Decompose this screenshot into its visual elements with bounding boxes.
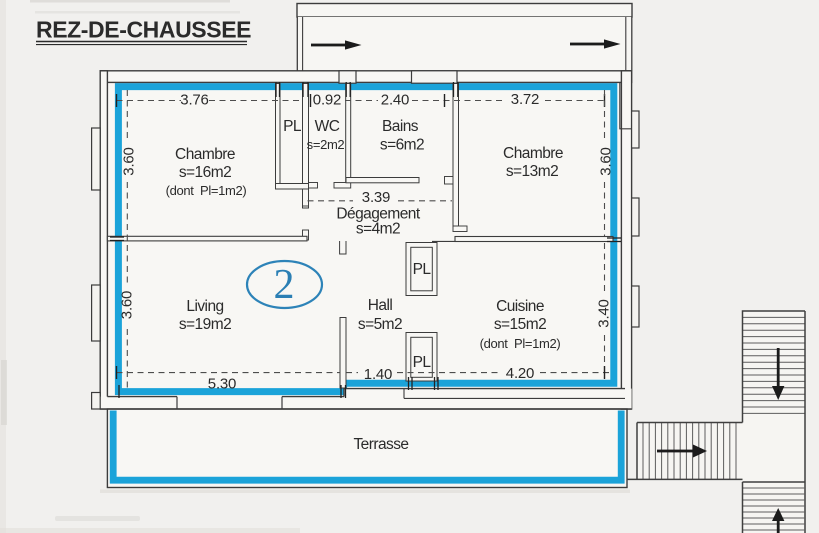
svg-text:s=19m2: s=19m2 bbox=[179, 316, 231, 333]
svg-text:5.30: 5.30 bbox=[208, 376, 236, 393]
svg-text:2: 2 bbox=[274, 262, 295, 308]
svg-text:PL: PL bbox=[283, 118, 302, 135]
svg-text:2.40: 2.40 bbox=[381, 92, 409, 109]
svg-text:s=13m2: s=13m2 bbox=[506, 163, 558, 180]
svg-text:0.92: 0.92 bbox=[313, 92, 341, 109]
svg-text:(dont Pl=1m2): (dont Pl=1m2) bbox=[480, 336, 561, 351]
svg-text:1.40: 1.40 bbox=[364, 366, 392, 383]
svg-text:s=15m2: s=15m2 bbox=[494, 316, 546, 333]
svg-text:s=2m2: s=2m2 bbox=[307, 137, 345, 152]
svg-text:3.72: 3.72 bbox=[511, 91, 539, 108]
svg-text:Chambre: Chambre bbox=[175, 146, 235, 163]
svg-text:PL: PL bbox=[413, 261, 432, 278]
svg-text:Chambre: Chambre bbox=[503, 145, 563, 162]
svg-text:s=16m2: s=16m2 bbox=[179, 164, 231, 181]
svg-text:(dont Pl=1m2): (dont Pl=1m2) bbox=[166, 183, 247, 198]
svg-text:3.60: 3.60 bbox=[119, 291, 136, 319]
svg-text:4.20: 4.20 bbox=[506, 365, 534, 382]
svg-text:Hall: Hall bbox=[368, 297, 393, 314]
svg-text:3.60: 3.60 bbox=[598, 147, 615, 175]
svg-text:Terrasse: Terrasse bbox=[353, 436, 408, 453]
svg-text:3.60: 3.60 bbox=[121, 147, 138, 175]
svg-text:3.39: 3.39 bbox=[362, 189, 390, 206]
svg-text:Bains: Bains bbox=[382, 118, 419, 135]
svg-text:3.76: 3.76 bbox=[180, 92, 208, 109]
svg-text:s=5m2: s=5m2 bbox=[358, 316, 402, 333]
svg-text:PL: PL bbox=[413, 354, 432, 371]
svg-text:3.40: 3.40 bbox=[596, 299, 613, 327]
svg-text:s=6m2: s=6m2 bbox=[380, 137, 424, 154]
svg-text:WC: WC bbox=[315, 118, 340, 135]
svg-text:Living: Living bbox=[186, 298, 223, 315]
svg-text:REZ-DE-CHAUSSEE: REZ-DE-CHAUSSEE bbox=[36, 17, 251, 43]
svg-text:s=4m2: s=4m2 bbox=[356, 221, 400, 238]
svg-text:Cuisine: Cuisine bbox=[496, 298, 544, 315]
